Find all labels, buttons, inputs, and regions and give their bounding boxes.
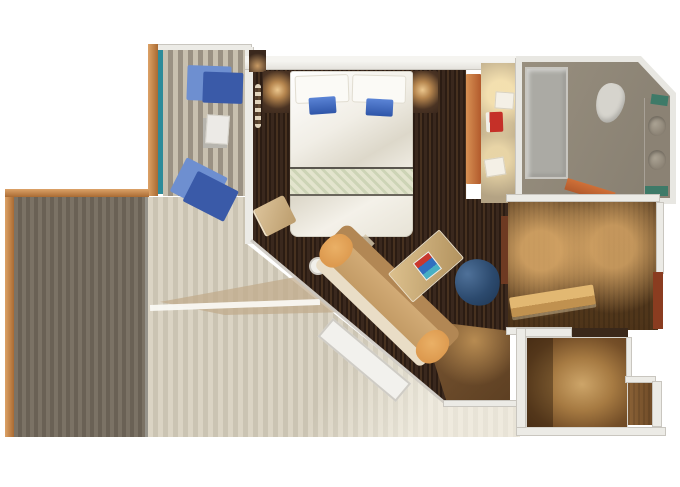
hall-extension-right-wall (652, 381, 662, 427)
lounger-back (202, 72, 243, 104)
balcony-deck-dark-planks (14, 197, 145, 437)
balcony-left-railing-upper (148, 44, 158, 196)
ceiling-light-fixture (494, 91, 514, 109)
bed-runner (290, 167, 413, 196)
dressing-room-top-wall (506, 194, 660, 202)
entry-hall-extension-floor (628, 383, 654, 425)
cabin-left-wall (245, 47, 254, 244)
bed (290, 71, 413, 237)
bedroom-head-wall (245, 56, 520, 70)
sink (648, 150, 666, 170)
sun-lounger-top (186, 64, 243, 104)
shower-stall (525, 67, 568, 179)
table-top (205, 114, 230, 145)
ceiling-light-fixture (484, 157, 507, 178)
balcony-side-table (202, 115, 229, 149)
pillow-blue-left (308, 96, 336, 115)
wardrobe (466, 74, 481, 184)
hall-shadow-column (527, 338, 553, 427)
vanity-chair-red (486, 112, 504, 133)
hall-bottom-wall (516, 427, 666, 436)
balcony-mid-railing (5, 189, 149, 197)
dressing-room-right-wall (656, 202, 664, 274)
living-bottom-wall (443, 400, 520, 407)
pillow-blue-right (366, 98, 394, 116)
corner-closet (249, 50, 266, 72)
curtain (255, 84, 261, 128)
balcony-deck-divider (145, 197, 148, 437)
hall-right-wall (626, 337, 632, 377)
nightstand-left-with-lamp (263, 71, 292, 113)
entry-hall-floor (526, 337, 628, 428)
balcony-left-railing-lower (5, 189, 14, 437)
teal-towel (650, 94, 668, 106)
dressing-room-door-left (501, 216, 508, 284)
hall-left-wall (516, 328, 526, 436)
dressing-room-door-right (653, 272, 663, 329)
sink-counter (644, 98, 670, 198)
suite-floorplan (0, 0, 680, 487)
table-decor-items (413, 251, 442, 281)
sink (648, 116, 666, 136)
vanity-corridor-floor (481, 63, 517, 203)
